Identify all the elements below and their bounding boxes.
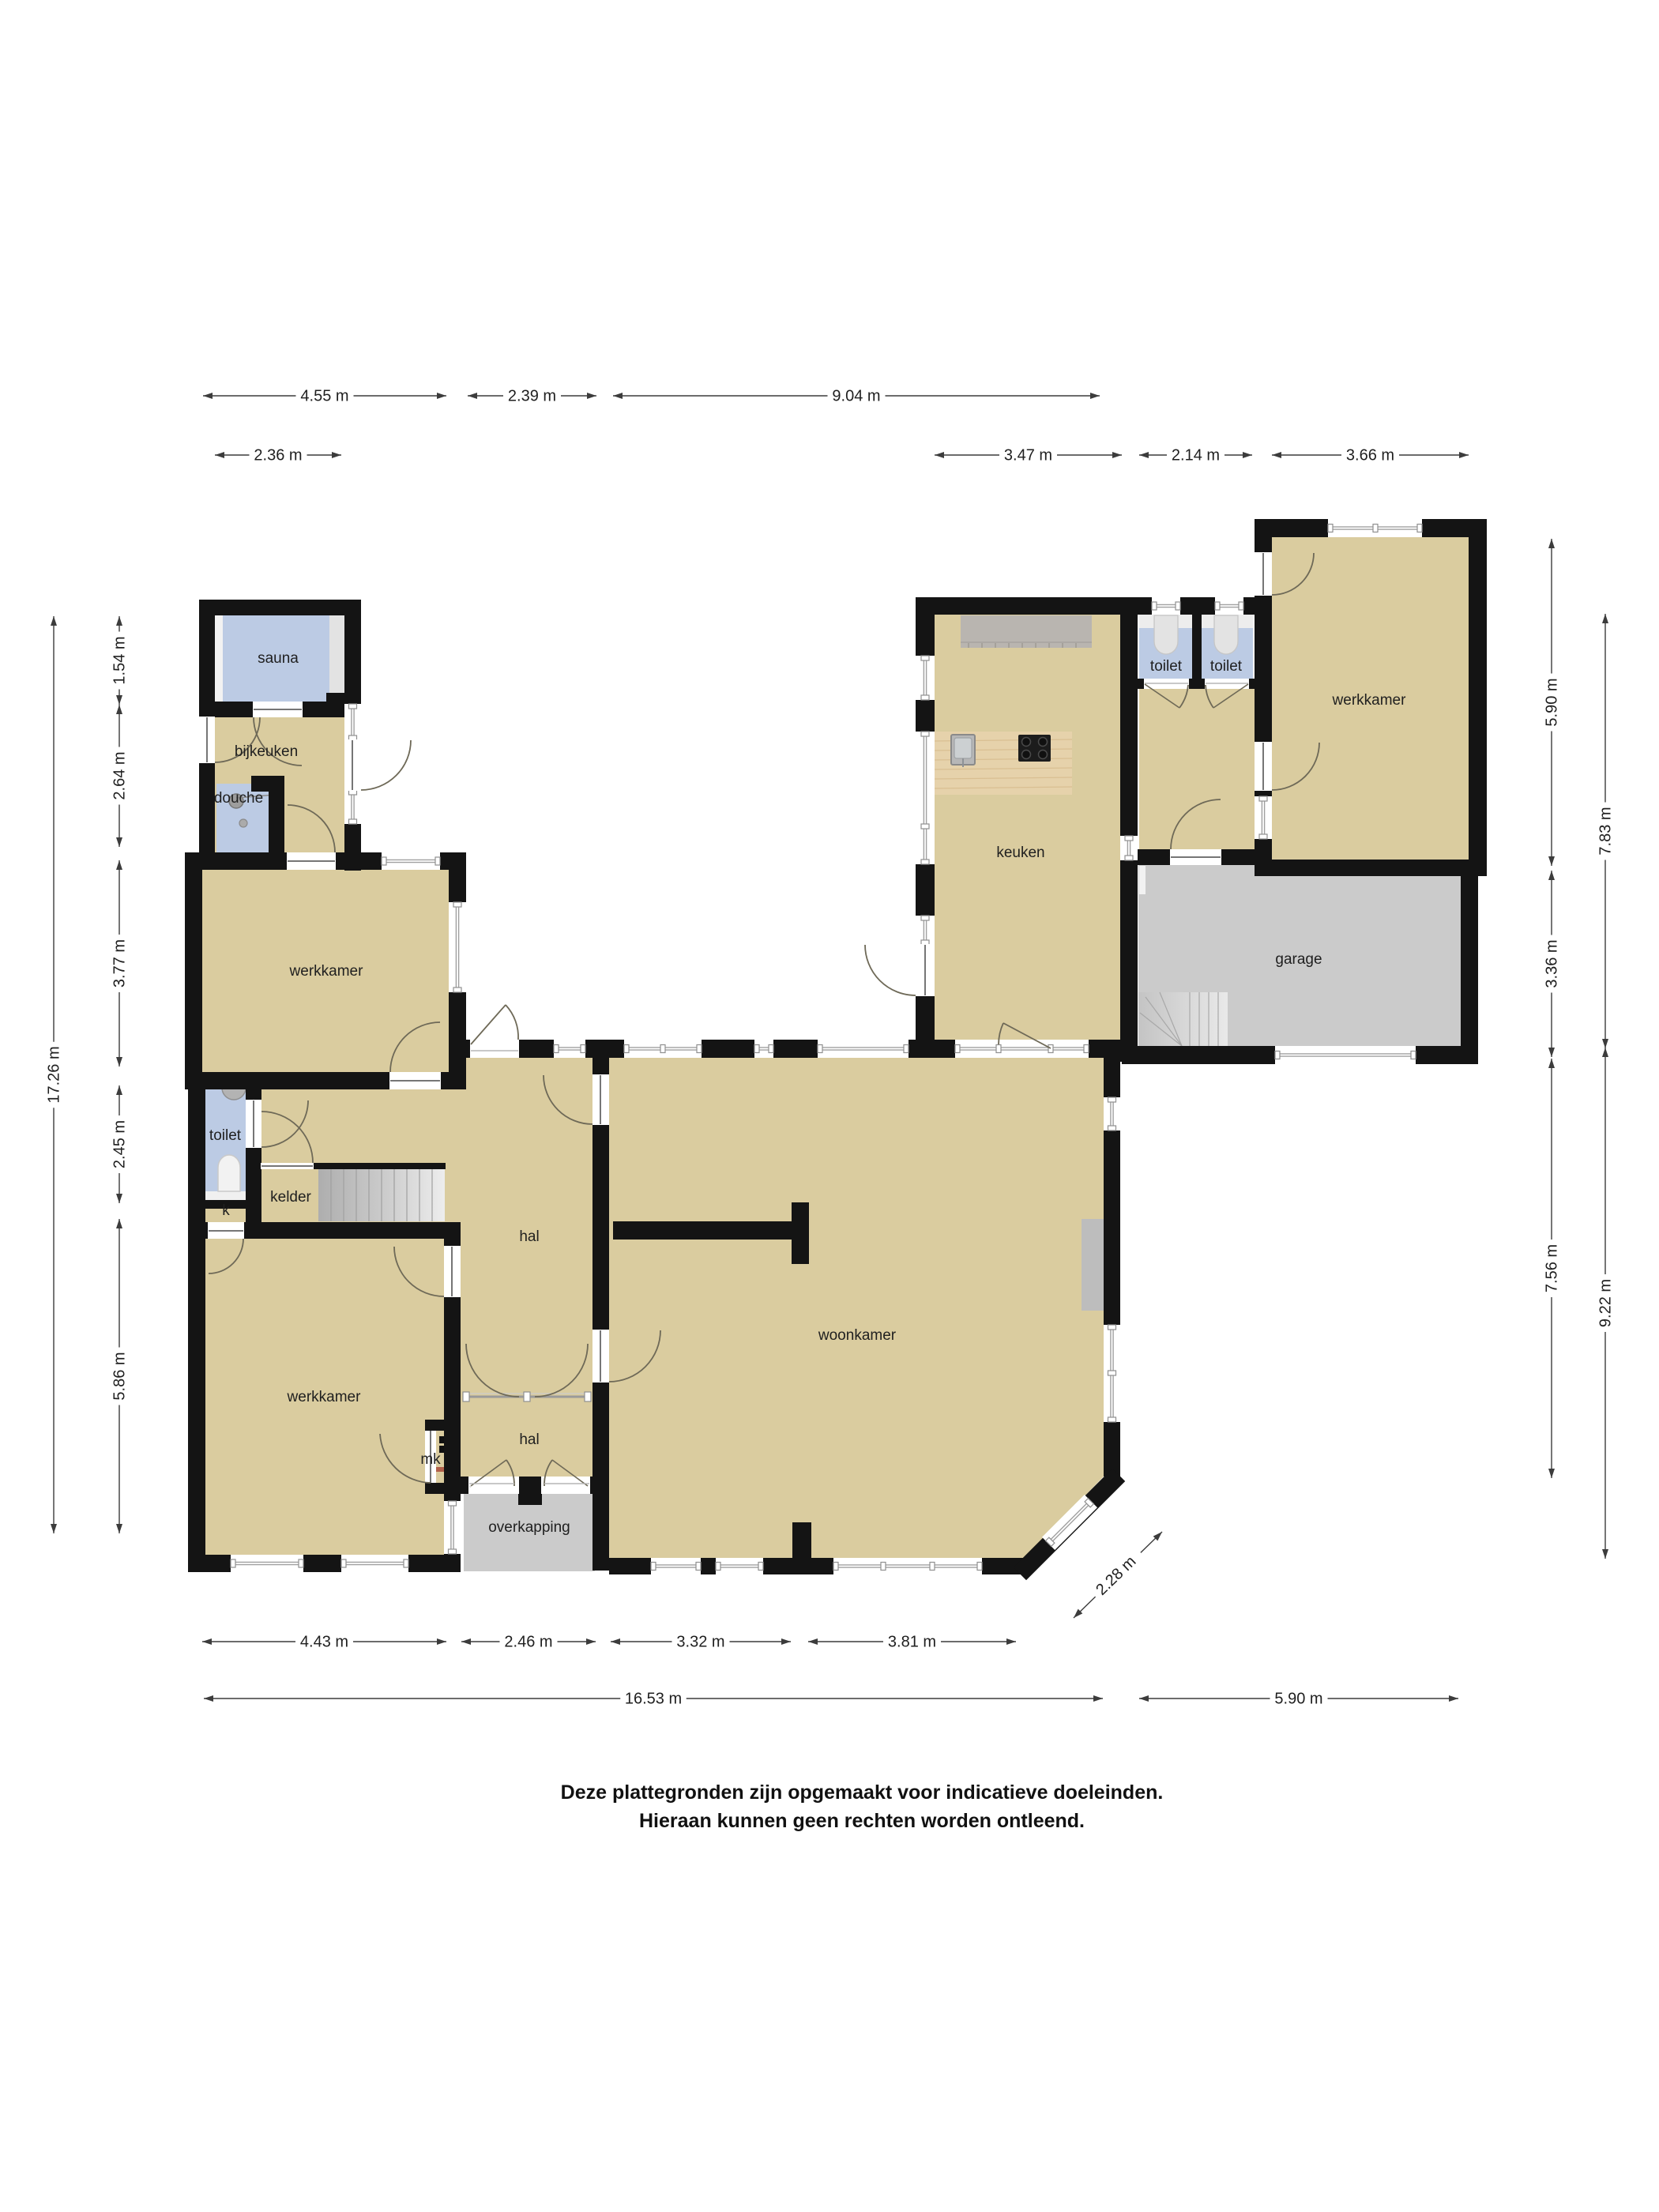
svg-text:16.53 m: 16.53 m (625, 1691, 682, 1708)
svg-text:mk: mk (420, 1451, 441, 1468)
svg-text:3.32 m: 3.32 m (676, 1634, 724, 1651)
svg-text:werkkamer: werkkamer (289, 963, 364, 980)
svg-text:3.77 m: 3.77 m (111, 939, 129, 987)
svg-text:Hieraan kunnen geen rechten wo: Hieraan kunnen geen rechten worden ontle… (639, 1810, 1085, 1832)
svg-text:9.22 m: 9.22 m (1597, 1279, 1615, 1327)
svg-text:3.36 m: 3.36 m (1544, 939, 1561, 987)
svg-text:sauna: sauna (258, 650, 299, 667)
svg-text:3.47 m: 3.47 m (1004, 447, 1052, 465)
svg-text:5.90 m: 5.90 m (1274, 1691, 1322, 1708)
svg-text:overkapping: overkapping (488, 1519, 570, 1536)
svg-text:2.36 m: 2.36 m (254, 447, 302, 465)
svg-text:werkkamer: werkkamer (287, 1389, 362, 1405)
svg-text:7.56 m: 7.56 m (1544, 1244, 1561, 1292)
svg-text:2.14 m: 2.14 m (1172, 447, 1220, 465)
svg-text:17.26 m: 17.26 m (46, 1046, 63, 1103)
svg-text:woonkamer: woonkamer (818, 1327, 897, 1344)
svg-text:toilet: toilet (1150, 658, 1183, 675)
svg-text:3.66 m: 3.66 m (1346, 447, 1394, 465)
svg-text:bijkeuken: bijkeuken (235, 743, 298, 760)
svg-text:hal: hal (519, 1228, 539, 1245)
svg-text:4.55 m: 4.55 m (300, 388, 348, 405)
svg-text:garage: garage (1275, 951, 1322, 968)
svg-text:2.46 m: 2.46 m (504, 1634, 552, 1651)
svg-text:kelder: kelder (270, 1189, 311, 1206)
svg-text:9.04 m: 9.04 m (832, 388, 880, 405)
svg-text:werkkamer: werkkamer (1332, 692, 1407, 709)
svg-text:5.86 m: 5.86 m (111, 1352, 129, 1400)
svg-text:k: k (222, 1202, 230, 1219)
svg-text:4.43 m: 4.43 m (300, 1634, 348, 1651)
svg-text:2.64 m: 2.64 m (111, 751, 129, 799)
svg-text:Deze plattegronden zijn opgema: Deze plattegronden zijn opgemaakt voor i… (561, 1781, 1164, 1804)
svg-text:3.81 m: 3.81 m (888, 1634, 936, 1651)
svg-text:5.90 m: 5.90 m (1544, 678, 1561, 726)
svg-text:2.45 m: 2.45 m (111, 1120, 129, 1168)
svg-text:toilet: toilet (1210, 658, 1243, 675)
svg-text:2.39 m: 2.39 m (508, 388, 556, 405)
svg-text:toilet: toilet (209, 1127, 242, 1144)
svg-text:keuken: keuken (996, 845, 1044, 861)
svg-text:1.54 m: 1.54 m (111, 636, 129, 684)
svg-text:hal: hal (519, 1431, 539, 1448)
svg-text:douche: douche (214, 790, 263, 807)
svg-text:7.83 m: 7.83 m (1597, 807, 1615, 855)
